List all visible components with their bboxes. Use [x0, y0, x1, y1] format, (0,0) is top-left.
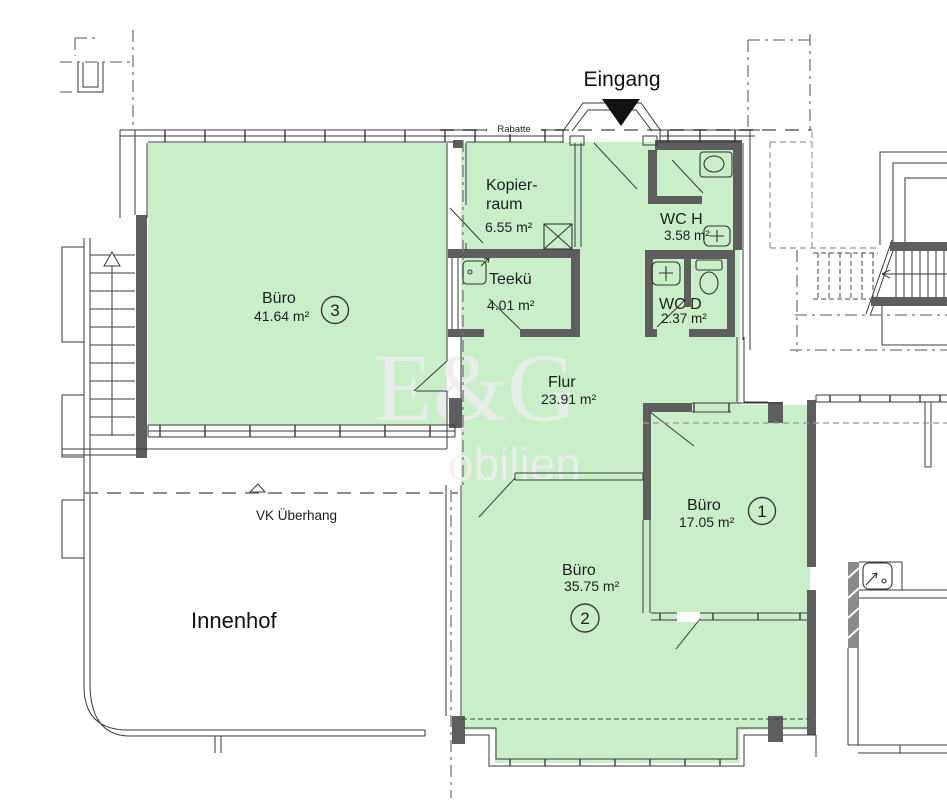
- innenhof-label: Innenhof: [191, 608, 278, 633]
- stairs-right-dashed-steps: [813, 253, 878, 299]
- axis-dash-topleft: [60, 30, 133, 130]
- watermark: E&G obilien: [374, 334, 581, 490]
- room-label-teekueche: Teekü: [489, 271, 532, 288]
- staircase-left: [90, 252, 135, 436]
- room-number-buero1: 1: [757, 502, 766, 521]
- wall-buero1-top-bar: [643, 403, 692, 412]
- room-area-buero-1: [645, 405, 810, 485]
- room-area-buero2: 35.75 m²: [564, 578, 620, 594]
- room-area-buero1: 17.05 m²: [679, 514, 735, 530]
- room-label-buero1: Büro: [687, 497, 721, 514]
- floorplan-canvas: E&G obilien: [0, 0, 947, 803]
- floorplan-drawing: E&G obilien: [0, 0, 947, 803]
- entrance-label: Eingang: [583, 68, 660, 91]
- wall-right-upper: [807, 400, 816, 567]
- axis-dash-topright: [748, 34, 810, 130]
- wall-buero1-buero2-divider: [643, 412, 651, 520]
- wall-pillar-buero1-top: [768, 402, 783, 423]
- room-area-wcd: 2.37 m²: [661, 311, 707, 326]
- room-area-buero-2-bay: [495, 730, 740, 763]
- room-area-flur: 23.91 m²: [541, 391, 597, 407]
- wall-teekueche-right: [571, 258, 580, 337]
- vk-ueberhang-label: VK Überhang: [256, 508, 337, 523]
- entrance-arrow-icon: [602, 99, 640, 126]
- room-label-flur: Flur: [548, 374, 576, 391]
- room-label-buero2: Büro: [562, 562, 596, 579]
- wall-right-lower: [807, 590, 816, 735]
- watermark-subtext: obilien: [448, 438, 581, 490]
- room-label-buero3: Büro: [262, 290, 296, 307]
- wall-pillar-flur-left: [449, 398, 462, 428]
- wall-buero3-left: [136, 215, 147, 458]
- wall-teekueche-top: [448, 249, 580, 258]
- room-area-kopierraum: 6.55 m²: [485, 219, 533, 235]
- wall-wch-partition: [648, 196, 702, 204]
- hatched-wall: [848, 562, 859, 648]
- shaft-dash-rect: [770, 132, 880, 248]
- wall-wcd-bottom-left: [645, 329, 657, 337]
- room-label-kopierraum-1: Kopier-: [486, 177, 538, 194]
- room-area-wch: 3.58 m²: [664, 228, 710, 243]
- room-label-kopierraum-2: raum: [486, 196, 522, 213]
- wall-stub-kopier: [453, 140, 463, 148]
- wall-pillar-buero2-right: [768, 716, 783, 742]
- wall-wcd-top: [645, 250, 735, 259]
- wall-wch-left: [648, 150, 657, 202]
- stairs-direction-arrow: [104, 252, 120, 266]
- wall-teekueche-bottom-left: [448, 329, 484, 337]
- vk-marker-triangle: [250, 484, 265, 492]
- rabatte-label: Rabatte: [497, 124, 530, 135]
- room-area-buero3: 41.64 m²: [254, 308, 310, 324]
- room-area-teekueche: 4.01 m²: [487, 297, 535, 313]
- wall-wch-right: [733, 150, 742, 250]
- room-number-buero3: 3: [330, 301, 339, 320]
- sink-rightroom-icon: [863, 563, 892, 589]
- wall-wcd-bottom-right: [689, 329, 735, 337]
- wall-teekueche-bottom-right: [520, 329, 580, 337]
- wall-wcd-right: [727, 259, 735, 337]
- wall-pillar-buero2-left: [452, 716, 465, 744]
- room-number-buero2: 2: [580, 609, 589, 628]
- room-label-wch: WC H: [660, 211, 703, 228]
